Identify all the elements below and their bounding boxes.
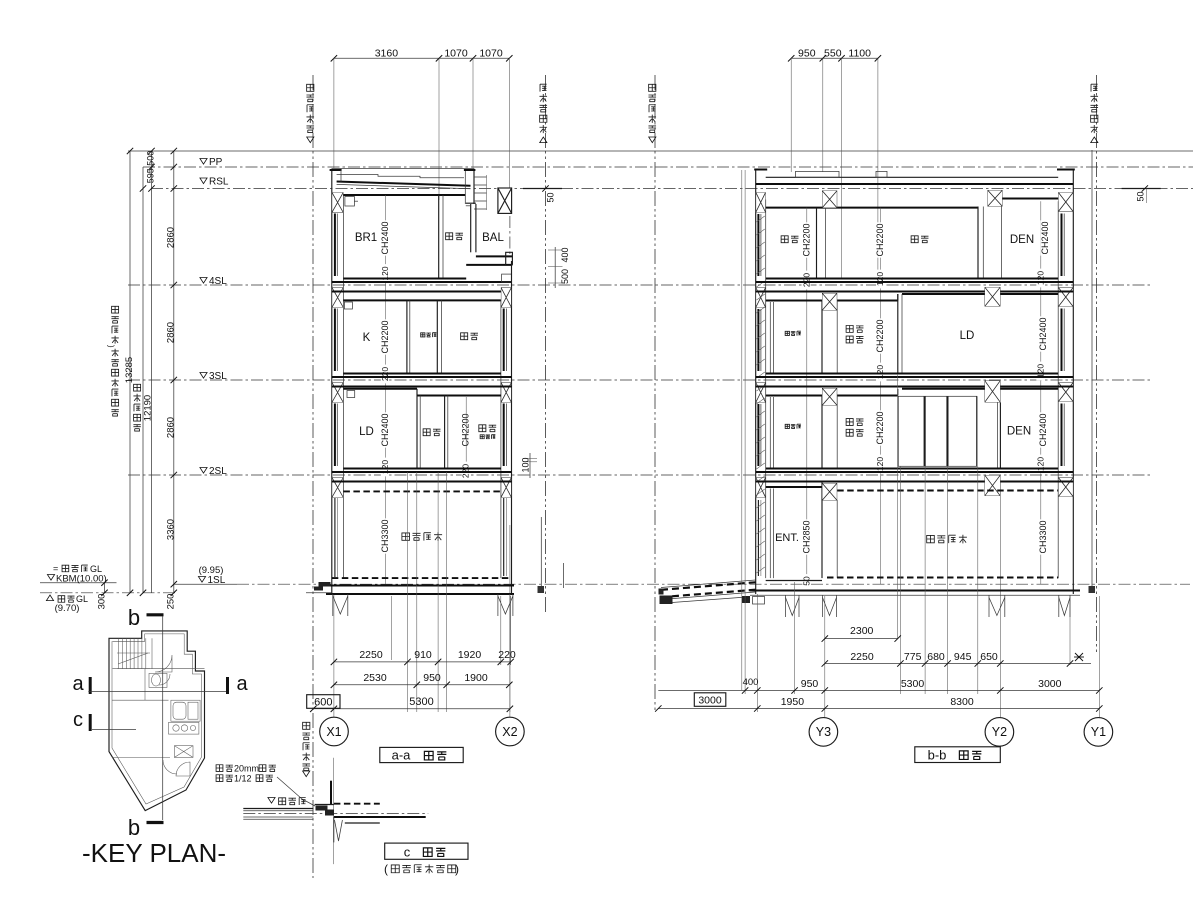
svg-text:CH3300: CH3300 — [380, 519, 390, 552]
svg-text:2860: 2860 — [166, 417, 177, 438]
svg-text:950: 950 — [801, 678, 819, 690]
svg-text:X1: X1 — [326, 725, 341, 739]
svg-text:1SL: 1SL — [208, 575, 226, 586]
svg-text:220: 220 — [498, 649, 516, 661]
svg-text:CH2400: CH2400 — [380, 221, 390, 254]
svg-text:2530: 2530 — [363, 672, 387, 684]
svg-text:3000: 3000 — [1038, 678, 1062, 690]
svg-text:300: 300 — [97, 594, 108, 610]
svg-text:(: ( — [106, 345, 115, 348]
svg-text:1950: 1950 — [781, 696, 805, 708]
svg-text:2300: 2300 — [850, 625, 874, 637]
svg-text:): ) — [455, 862, 459, 876]
svg-text:CH2200: CH2200 — [875, 411, 885, 444]
svg-text:400: 400 — [560, 247, 570, 262]
svg-text:CH2400: CH2400 — [1038, 317, 1048, 350]
svg-text:c: c — [404, 844, 411, 859]
svg-text:(: ( — [384, 862, 388, 876]
svg-text:3000: 3000 — [698, 695, 722, 707]
svg-text:550: 550 — [824, 48, 842, 60]
svg-text:950: 950 — [423, 672, 441, 684]
svg-text:1920: 1920 — [458, 649, 482, 661]
svg-text:b: b — [128, 605, 140, 630]
svg-text:CH2200: CH2200 — [380, 320, 390, 353]
svg-text:CH2200: CH2200 — [875, 319, 885, 352]
svg-text:2250: 2250 — [850, 651, 874, 663]
svg-text:CH2850: CH2850 — [801, 520, 811, 553]
svg-text:1100: 1100 — [848, 48, 871, 60]
svg-text:LD: LD — [359, 426, 374, 438]
svg-text:100: 100 — [521, 457, 531, 472]
svg-text:5300: 5300 — [409, 696, 433, 708]
svg-text:Y3: Y3 — [816, 725, 831, 739]
svg-text:a-a: a-a — [392, 748, 412, 763]
svg-text:50: 50 — [1136, 191, 1146, 201]
svg-text:a: a — [72, 673, 84, 695]
svg-text:945: 945 — [954, 651, 972, 663]
svg-text:250: 250 — [166, 594, 177, 610]
svg-text:CH3300: CH3300 — [1038, 520, 1048, 553]
svg-text:DEN: DEN — [1007, 426, 1031, 438]
svg-text:DEN: DEN — [1010, 234, 1034, 246]
svg-text:Y1: Y1 — [1091, 725, 1106, 739]
svg-text:=: = — [53, 564, 58, 574]
svg-text:400: 400 — [743, 677, 759, 688]
svg-text:CH2400: CH2400 — [380, 413, 390, 446]
svg-text:1/12: 1/12 — [234, 774, 252, 784]
svg-text:2SL: 2SL — [209, 466, 227, 477]
svg-text:RSL: RSL — [209, 177, 229, 188]
svg-text:775: 775 — [904, 651, 922, 663]
svg-text:CH2200: CH2200 — [801, 223, 811, 256]
svg-text:5300: 5300 — [901, 678, 925, 690]
svg-text:KBM(10.00): KBM(10.00) — [56, 574, 107, 585]
svg-text:2250: 2250 — [359, 649, 383, 661]
svg-text:Y2: Y2 — [992, 725, 1007, 739]
svg-text:PP: PP — [209, 157, 223, 168]
svg-text:BAL: BAL — [482, 232, 504, 244]
svg-text:b: b — [128, 815, 140, 840]
svg-text:910: 910 — [414, 649, 432, 661]
svg-text:CH2200: CH2200 — [461, 413, 471, 446]
svg-text:b-b: b-b — [928, 747, 947, 762]
svg-text:1070: 1070 — [444, 48, 468, 60]
svg-text:2860: 2860 — [166, 227, 177, 248]
svg-text:BR1: BR1 — [355, 232, 377, 244]
svg-text:600: 600 — [314, 697, 332, 709]
svg-text:CH2400: CH2400 — [1040, 221, 1050, 254]
svg-text:ENT.: ENT. — [775, 532, 799, 544]
svg-text:3360: 3360 — [166, 519, 177, 540]
svg-text:1900: 1900 — [464, 672, 488, 684]
svg-text:50: 50 — [546, 192, 556, 202]
svg-text:220: 220 — [801, 273, 811, 287]
svg-text:650: 650 — [980, 651, 998, 663]
svg-text:8300: 8300 — [950, 696, 974, 708]
svg-text:4SL: 4SL — [209, 276, 227, 287]
svg-text:CH2200: CH2200 — [875, 223, 885, 256]
svg-text:CH2400: CH2400 — [1038, 413, 1048, 446]
svg-text:-KEY PLAN-: -KEY PLAN- — [82, 838, 226, 868]
svg-text:c: c — [73, 709, 83, 731]
svg-text:120: 120 — [1035, 364, 1045, 378]
svg-text:LD: LD — [960, 330, 975, 342]
svg-text:3160: 3160 — [375, 48, 399, 60]
svg-text:500: 500 — [560, 269, 570, 284]
svg-text:1070: 1070 — [479, 48, 503, 60]
svg-text:595,500: 595,500 — [146, 151, 156, 184]
svg-text:2860: 2860 — [166, 322, 177, 343]
svg-text:(9.70): (9.70) — [55, 603, 80, 614]
svg-text:20mm: 20mm — [234, 764, 259, 774]
svg-text:GL: GL — [90, 564, 102, 574]
svg-text:950: 950 — [798, 48, 816, 60]
svg-text:K: K — [363, 332, 371, 344]
svg-text:220: 220 — [461, 464, 471, 478]
svg-text:X2: X2 — [502, 725, 517, 739]
svg-text:a: a — [236, 673, 248, 695]
svg-text:680: 680 — [927, 651, 945, 663]
svg-text:12190: 12190 — [143, 395, 154, 421]
svg-text:3SL: 3SL — [209, 371, 227, 382]
svg-text:13285: 13285 — [124, 357, 135, 383]
